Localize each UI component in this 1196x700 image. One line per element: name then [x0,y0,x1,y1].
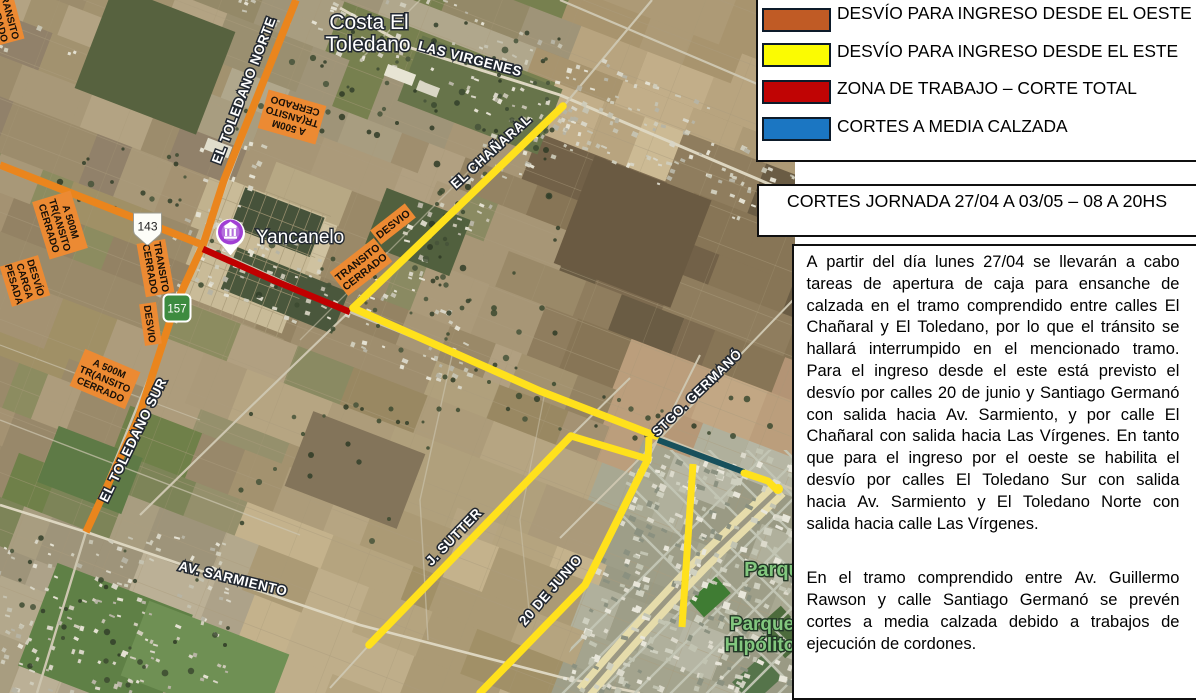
svg-text:143: 143 [137,220,157,234]
svg-text:Costa El: Costa El [329,11,408,34]
svg-text:Hipólito: Hipólito [725,635,795,656]
svg-text:157: 157 [167,304,186,316]
svg-text:Parque: Parque [744,559,795,581]
svg-text:Yancanelo: Yancanelo [256,227,344,248]
svg-text:Toledano: Toledano [325,33,410,56]
svg-text:Parque: Parque [730,614,794,635]
